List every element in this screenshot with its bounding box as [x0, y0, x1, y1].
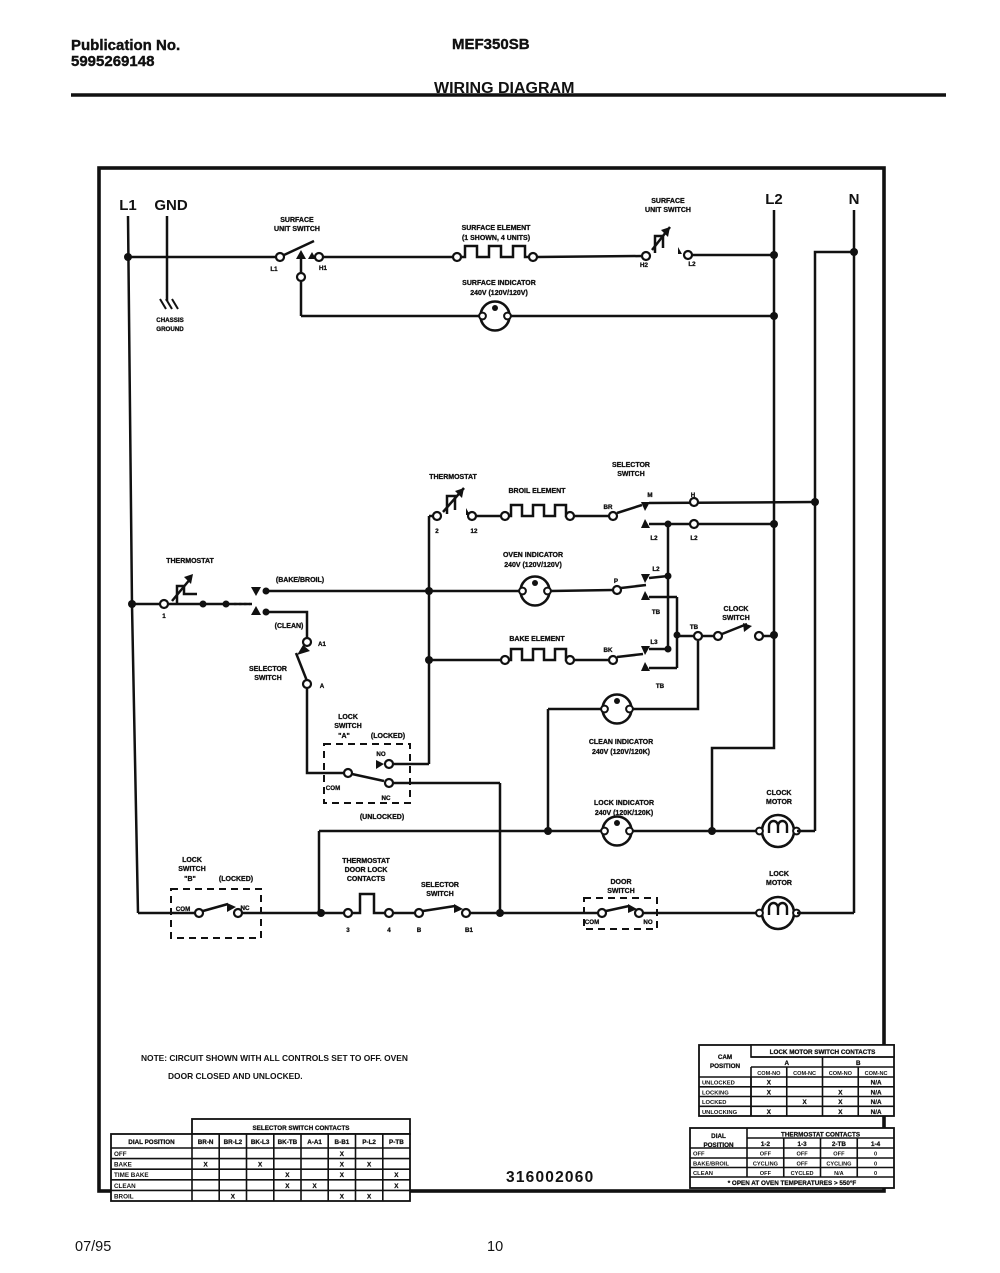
svg-text:P-L2: P-L2: [362, 1139, 376, 1146]
svg-text:N/A: N/A: [871, 1089, 882, 1096]
svg-text:DOOR CLOSED AND UNLOCKED.: DOOR CLOSED AND UNLOCKED.: [168, 1071, 303, 1081]
svg-text:LOCKED: LOCKED: [702, 1100, 726, 1106]
svg-text:GND: GND: [154, 197, 188, 214]
svg-text:CONTACTS: CONTACTS: [347, 876, 386, 883]
svg-text:SELECTOR: SELECTOR: [249, 666, 287, 673]
svg-text:B: B: [856, 1060, 861, 1067]
svg-text:H2: H2: [640, 262, 648, 269]
svg-text:P: P: [614, 578, 618, 585]
svg-text:TB: TB: [652, 609, 661, 616]
svg-text:BR-N: BR-N: [198, 1139, 214, 1146]
svg-text:B-B1: B-B1: [335, 1139, 350, 1146]
svg-text:NC: NC: [241, 905, 250, 912]
svg-text:L2: L2: [650, 535, 658, 542]
svg-text:DOOR LOCK: DOOR LOCK: [345, 867, 388, 874]
svg-text:0: 0: [874, 1162, 877, 1168]
svg-text:OFF: OFF: [114, 1151, 127, 1158]
svg-text:LOCK MOTOR SWITCH CONTACTS: LOCK MOTOR SWITCH CONTACTS: [770, 1049, 876, 1056]
svg-text:GROUND: GROUND: [156, 326, 184, 333]
svg-text:CYCLING: CYCLING: [753, 1162, 778, 1168]
svg-text:OFF: OFF: [797, 1162, 809, 1168]
svg-text:L2: L2: [652, 566, 660, 573]
svg-text:L2: L2: [688, 261, 696, 268]
svg-text:N/A: N/A: [871, 1080, 882, 1087]
svg-text:A: A: [784, 1060, 789, 1067]
svg-text:BK-TB: BK-TB: [278, 1139, 298, 1146]
svg-text:COM: COM: [585, 919, 599, 926]
svg-text:B1: B1: [465, 927, 473, 934]
svg-text:CLOCK: CLOCK: [724, 606, 749, 613]
svg-text:SWITCH: SWITCH: [178, 866, 206, 873]
svg-text:OFF: OFF: [797, 1152, 809, 1158]
svg-text:DOOR: DOOR: [611, 879, 632, 886]
svg-text:CYCLED: CYCLED: [791, 1171, 814, 1177]
svg-text:SWITCH: SWITCH: [617, 471, 645, 478]
svg-text:LOCK: LOCK: [769, 871, 789, 878]
svg-text:BROIL: BROIL: [114, 1193, 134, 1200]
svg-text:M: M: [647, 492, 652, 499]
svg-text:LOCKING: LOCKING: [702, 1090, 729, 1096]
svg-text:"B": "B": [184, 876, 196, 883]
svg-text:SURFACE ELEMENT: SURFACE ELEMENT: [462, 225, 532, 232]
svg-text:LOCK INDICATOR: LOCK INDICATOR: [594, 800, 654, 807]
svg-text:BK-L3: BK-L3: [251, 1139, 270, 1146]
svg-text:H: H: [691, 492, 696, 499]
svg-text:1-3: 1-3: [798, 1141, 808, 1148]
svg-text:LOCK: LOCK: [338, 714, 358, 721]
svg-text:UNLOCKED: UNLOCKED: [702, 1081, 735, 1087]
svg-text:OVEN INDICATOR: OVEN INDICATOR: [503, 552, 563, 559]
svg-text:(UNLOCKED): (UNLOCKED): [360, 814, 404, 821]
svg-text:(CLEAN): (CLEAN): [275, 623, 304, 630]
svg-text:Publication No.: Publication No.: [71, 37, 180, 54]
svg-text:N/A: N/A: [871, 1099, 882, 1106]
svg-text:10: 10: [487, 1239, 503, 1255]
svg-text:P-TB: P-TB: [389, 1139, 404, 1146]
svg-text:07/95: 07/95: [75, 1239, 111, 1255]
svg-text:5995269148: 5995269148: [71, 53, 154, 70]
svg-text:L2: L2: [765, 191, 783, 208]
svg-text:SURFACE: SURFACE: [280, 217, 314, 224]
svg-text:SURFACE: SURFACE: [651, 198, 685, 205]
svg-text:CLEAN: CLEAN: [693, 1171, 713, 1177]
svg-text:THERMOSTAT: THERMOSTAT: [429, 474, 477, 481]
svg-text:UNLOCKING: UNLOCKING: [702, 1110, 738, 1116]
svg-text:TB: TB: [656, 683, 665, 690]
svg-text:L1: L1: [270, 266, 278, 273]
svg-text:TIME BAKE: TIME BAKE: [114, 1172, 149, 1179]
svg-text:L1: L1: [119, 197, 137, 214]
svg-text:240V (120V/120K): 240V (120V/120K): [592, 749, 650, 756]
svg-text:2: 2: [435, 528, 439, 535]
svg-text:COM: COM: [176, 906, 190, 913]
svg-text:4: 4: [387, 927, 391, 934]
svg-text:(LOCKED): (LOCKED): [219, 876, 253, 883]
svg-text:CLEAN: CLEAN: [114, 1183, 136, 1190]
svg-text:12: 12: [471, 528, 478, 535]
svg-text:L2: L2: [690, 535, 698, 542]
svg-text:BROIL ELEMENT: BROIL ELEMENT: [508, 488, 566, 495]
svg-text:BAKE: BAKE: [114, 1162, 132, 1169]
svg-text:BK: BK: [604, 647, 613, 654]
svg-text:240V (120K/120K): 240V (120K/120K): [595, 810, 653, 817]
svg-text:NO: NO: [643, 919, 652, 926]
svg-text:BAKE ELEMENT: BAKE ELEMENT: [509, 636, 565, 643]
svg-text:POSITION: POSITION: [710, 1063, 741, 1070]
svg-text:"A": "A": [338, 733, 350, 740]
svg-text:MOTOR: MOTOR: [766, 880, 792, 887]
svg-text:SWITCH: SWITCH: [334, 723, 362, 730]
svg-text:0: 0: [874, 1152, 877, 1158]
svg-text:OFF: OFF: [760, 1171, 772, 1177]
svg-text:THERMOSTAT: THERMOSTAT: [166, 558, 214, 565]
svg-text:(1 SHOWN, 4 UNITS): (1 SHOWN, 4 UNITS): [462, 235, 530, 242]
svg-text:COM-NO: COM-NO: [757, 1071, 781, 1077]
svg-text:OFF: OFF: [693, 1152, 705, 1158]
svg-text:N/A: N/A: [871, 1109, 882, 1116]
svg-text:316002060: 316002060: [506, 1169, 594, 1186]
svg-text:COM: COM: [326, 785, 340, 792]
svg-text:DIAL: DIAL: [711, 1133, 726, 1140]
svg-text:UNIT SWITCH: UNIT SWITCH: [645, 207, 691, 214]
svg-text:LOCK: LOCK: [182, 857, 202, 864]
svg-text:240V (120V/120V): 240V (120V/120V): [470, 290, 528, 297]
svg-text:COM-NO: COM-NO: [829, 1071, 853, 1077]
svg-text:A1: A1: [318, 641, 326, 648]
svg-text:SELECTOR: SELECTOR: [421, 882, 459, 889]
svg-text:OFF: OFF: [833, 1152, 845, 1158]
svg-text:N: N: [849, 191, 860, 208]
svg-text:UNIT SWITCH: UNIT SWITCH: [274, 226, 320, 233]
svg-text:0: 0: [874, 1171, 877, 1177]
svg-text:N/A: N/A: [834, 1171, 844, 1177]
svg-text:TB: TB: [690, 624, 699, 631]
svg-text:THERMOSTAT: THERMOSTAT: [342, 858, 390, 865]
svg-text:L3: L3: [650, 639, 658, 646]
svg-text:CYCLING: CYCLING: [826, 1162, 851, 1168]
svg-text:H1: H1: [319, 265, 327, 272]
svg-text:CLEAN INDICATOR: CLEAN INDICATOR: [589, 739, 653, 746]
svg-text:SELECTOR SWITCH CONTACTS: SELECTOR SWITCH CONTACTS: [252, 1125, 349, 1132]
svg-text:COM-NC: COM-NC: [793, 1071, 816, 1077]
svg-text:1-4: 1-4: [871, 1141, 881, 1148]
svg-text:1: 1: [162, 613, 166, 620]
svg-text:1-2: 1-2: [761, 1141, 771, 1148]
svg-text:SWITCH: SWITCH: [426, 891, 454, 898]
svg-text:SWITCH: SWITCH: [722, 615, 750, 622]
svg-text:B: B: [417, 927, 422, 934]
svg-text:SELECTOR: SELECTOR: [612, 462, 650, 469]
svg-text:NO: NO: [376, 751, 385, 758]
svg-text:SURFACE INDICATOR: SURFACE INDICATOR: [462, 280, 536, 287]
svg-text:NC: NC: [382, 795, 391, 802]
svg-text:BR-L2: BR-L2: [224, 1139, 243, 1146]
svg-text:MEF350SB: MEF350SB: [452, 36, 530, 53]
svg-text:(LOCKED): (LOCKED): [371, 733, 405, 740]
svg-text:A-A1: A-A1: [307, 1139, 322, 1146]
svg-text:NOTE: CIRCUIT SHOWN WITH ALL C: NOTE: CIRCUIT SHOWN WITH ALL CONTROLS SE…: [141, 1053, 408, 1063]
svg-text:240V (120V/120V): 240V (120V/120V): [504, 562, 562, 569]
svg-text:3: 3: [346, 927, 350, 934]
svg-text:DIAL POSITION: DIAL POSITION: [128, 1139, 175, 1146]
svg-text:COM-NC: COM-NC: [865, 1071, 888, 1077]
svg-text:A: A: [320, 683, 325, 690]
svg-text:BR: BR: [604, 504, 613, 511]
svg-text:SWITCH: SWITCH: [254, 675, 282, 682]
svg-text:(BAKE/BROIL): (BAKE/BROIL): [276, 577, 324, 584]
svg-text:MOTOR: MOTOR: [766, 799, 792, 806]
svg-text:* OPEN AT OVEN TEMPERATURES >: * OPEN AT OVEN TEMPERATURES > 550°F: [728, 1179, 857, 1187]
svg-text:CHASSIS: CHASSIS: [156, 317, 184, 324]
svg-text:CLOCK: CLOCK: [767, 790, 792, 797]
svg-text:SWITCH: SWITCH: [607, 888, 635, 895]
svg-text:2-TB: 2-TB: [832, 1141, 846, 1148]
svg-text:CAM: CAM: [718, 1054, 732, 1061]
svg-text:BAKE/BROIL: BAKE/BROIL: [693, 1162, 730, 1168]
svg-text:OFF: OFF: [760, 1152, 772, 1158]
